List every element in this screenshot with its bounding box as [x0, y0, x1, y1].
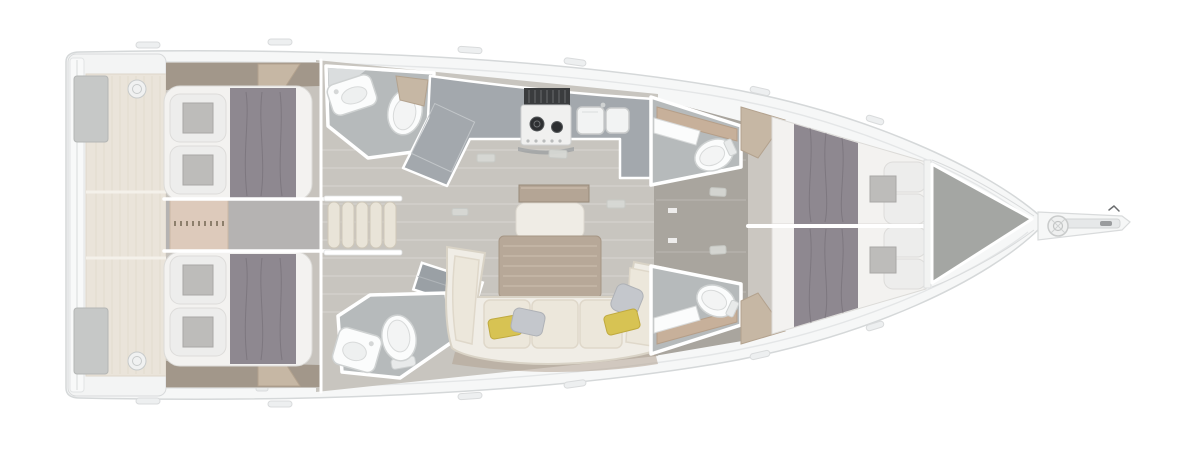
wind-indicator-icon — [1109, 206, 1119, 211]
cabin-door-latch-top — [668, 208, 677, 213]
folding-chair — [356, 202, 368, 248]
pillow-pad — [183, 317, 213, 347]
boat-floorplan-svg — [0, 0, 1200, 451]
boat-layout-canvas — [0, 0, 1200, 451]
cabin-door-latch-bottom — [668, 238, 677, 243]
chair-stowage — [324, 196, 402, 255]
galley-sink-left — [577, 107, 604, 134]
stove — [521, 105, 571, 145]
deck-filler-cap-top — [128, 80, 146, 98]
pillow-pad — [870, 247, 896, 273]
faucet — [601, 103, 606, 108]
burner-large — [530, 117, 544, 131]
folding-chair — [384, 202, 396, 248]
pillow-pad — [870, 176, 896, 202]
deck-filler-cap-bottom — [128, 352, 146, 370]
companionway-corridor — [164, 199, 330, 251]
anchor-tip — [1100, 221, 1112, 226]
aft-cabin-starboard — [164, 250, 320, 388]
stern-locker-top — [74, 76, 108, 142]
pillow-pad — [183, 155, 213, 185]
pillow-pad — [183, 103, 213, 133]
duvet — [230, 254, 296, 364]
transom-platform — [68, 54, 166, 396]
folding-chair — [342, 202, 354, 248]
pillow-pad — [183, 265, 213, 295]
folding-chair — [370, 202, 382, 248]
aft-cabin-port — [164, 62, 320, 200]
bow — [1038, 206, 1130, 240]
galley-sink-right — [606, 108, 629, 133]
cabinet-tick-marks — [174, 221, 224, 226]
duvet — [230, 88, 296, 198]
center-bench — [516, 203, 584, 239]
burner-small — [552, 122, 563, 133]
stern-locker-bottom — [74, 308, 108, 374]
folding-chair — [328, 202, 340, 248]
forepeak-bulkhead — [924, 160, 931, 288]
